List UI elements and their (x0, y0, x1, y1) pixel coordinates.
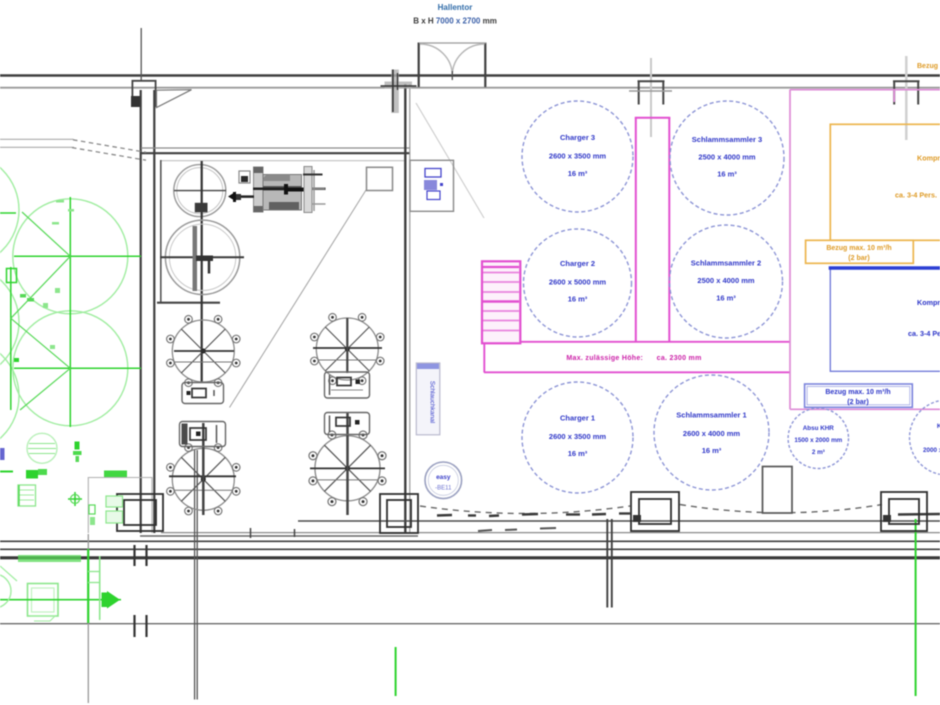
svg-text:2500 x 4000 mm: 2500 x 4000 mm (698, 153, 755, 162)
svg-text:Max. zulässige Höhe: ca.: Max. zulässige Höhe: ca. 2300 mm (566, 355, 701, 362)
svg-text:1500 x 2000 mm: 1500 x 2000 mm (794, 437, 842, 444)
svg-text:Kompressor: Kompressor (917, 298, 940, 307)
svg-text:2 m³: 2 m³ (812, 449, 825, 456)
svg-text:Charger 3: Charger 3 (560, 133, 595, 142)
svg-text:(2 bar): (2 bar) (847, 399, 868, 406)
svg-text:ca. 3-4 Pers.: ca. 3-4 Pers. (895, 191, 937, 200)
svg-text:16 m³: 16 m³ (568, 295, 588, 304)
svg-text:-BE11: -BE11 (435, 486, 452, 492)
svg-text:2600 x 3500 mm: 2600 x 3500 mm (549, 152, 606, 161)
svg-text:Schlammsammler 3: Schlammsammler 3 (692, 135, 762, 144)
svg-text:Bezug max.: Bezug max. (917, 63, 940, 70)
svg-text:2000 x 2000 mm: 2000 x 2000 mm (923, 447, 940, 454)
svg-text:Kompressor: Kompressor (917, 154, 940, 163)
svg-text:(2 bar): (2 bar) (848, 255, 869, 262)
svg-text:Hallentor: Hallentor (438, 3, 473, 12)
svg-text:2600 x 4000 mm: 2600 x 4000 mm (683, 429, 740, 438)
svg-text:2600 x 3500 mm: 2600 x 3500 mm (549, 432, 606, 441)
svg-text:Charger 2: Charger 2 (560, 259, 595, 268)
svg-text:ca. 3-4 Pers.: ca. 3-4 Pers. (908, 329, 940, 338)
svg-text:16 m³: 16 m³ (716, 294, 736, 303)
svg-text:2600 x 5000 mm: 2600 x 5000 mm (549, 278, 606, 287)
svg-text:Schlammsammler 1: Schlammsammler 1 (676, 411, 746, 420)
svg-text:Schlammsammler 2: Schlammsammler 2 (691, 259, 761, 268)
svg-text:Bezug max. 10 m³/h: Bezug max. 10 m³/h (826, 245, 891, 252)
svg-text:16 m³: 16 m³ (702, 446, 722, 455)
svg-text:Charger 1: Charger 1 (560, 414, 595, 423)
svg-text:16 m³: 16 m³ (568, 169, 588, 178)
svg-text:16 m³: 16 m³ (568, 449, 588, 458)
svg-text:2500 x 4000 mm: 2500 x 4000 mm (697, 276, 754, 285)
svg-text:Bezug max. 10 m³/h: Bezug max. 10 m³/h (825, 389, 890, 396)
svg-text:Schlauchkanal: Schlauchkanal (429, 381, 436, 424)
svg-text:easy: easy (436, 474, 451, 481)
svg-text:Absu KHR: Absu KHR (803, 425, 835, 432)
svg-text:16 m³: 16 m³ (717, 170, 737, 179)
svg-text:B x H 7000 x 2700 mm: B x H 7000 x 2700 mm (413, 17, 497, 26)
